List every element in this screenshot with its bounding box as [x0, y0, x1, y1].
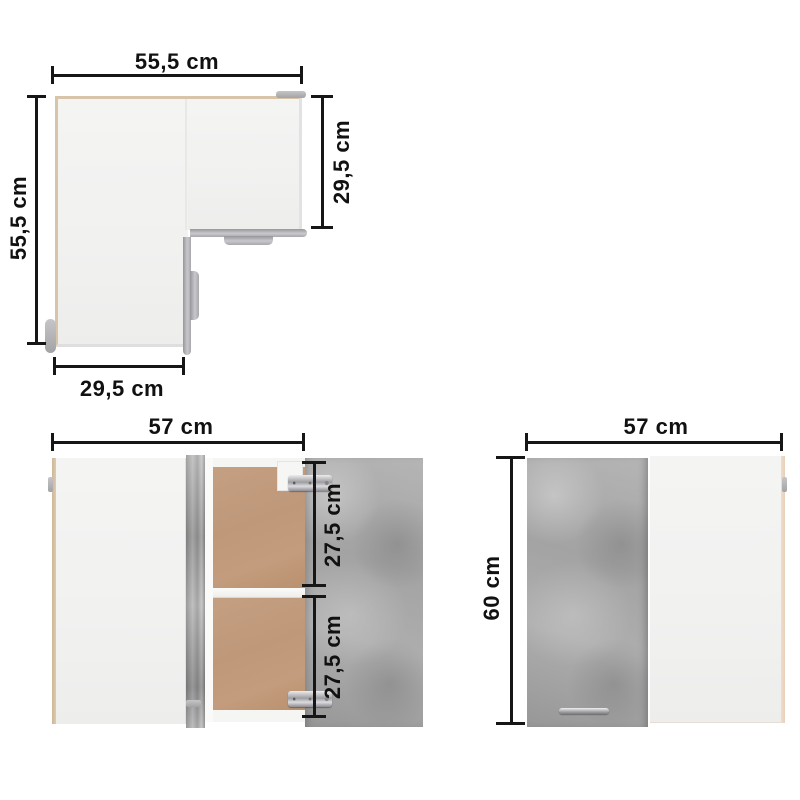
interior-shelf	[213, 588, 305, 598]
upper-compartment-dim-tick-bottom	[302, 584, 326, 587]
top-view-bottom-door-handle	[190, 271, 199, 320]
right-wing-dim-label: 29,5 cm	[329, 120, 355, 204]
closed-view-right-bracket-icon	[782, 477, 787, 492]
bottom-wing-dim-label: 29,5 cm	[80, 376, 164, 402]
open-width-dim-line	[52, 441, 305, 444]
bottom-wing-dim-line	[55, 365, 185, 368]
closed-height-dim-tick-top	[496, 456, 525, 459]
top-view-mount-bracket-icon	[276, 91, 306, 98]
top-view-side-bracket-icon	[45, 319, 56, 353]
top-view-left-wing-panel	[55, 96, 188, 347]
open-view-interior	[213, 458, 305, 722]
closed-view-white-side-panel	[650, 456, 781, 723]
upper-compartment-dim-tick-top	[302, 461, 326, 464]
right-wing-dim-tick-bottom	[311, 226, 333, 229]
closed-width-dim-tick-left	[525, 433, 528, 451]
closed-width-dim-tick-right	[780, 433, 783, 451]
open-view-left-bracket-icon	[48, 477, 53, 492]
top-view-panel-divider	[185, 99, 187, 230]
top-width-dim-tick-left	[51, 66, 54, 84]
open-view-carcass-sliver	[205, 458, 213, 722]
right-wing-dim-tick-top	[311, 95, 333, 98]
lower-compartment-dim-tick-top	[302, 595, 326, 598]
closed-height-dim-tick-bottom	[496, 722, 525, 725]
open-view-side-edge	[186, 455, 205, 728]
open-width-dim-label: 57 cm	[149, 414, 214, 440]
upper-compartment-dim-line	[313, 463, 316, 587]
open-width-dim-tick-right	[302, 433, 305, 451]
top-depth-dim-tick-bottom	[27, 342, 46, 345]
top-view-right-wing-panel	[188, 96, 302, 230]
top-depth-dim-tick-top	[27, 95, 46, 98]
top-width-dim-label: 55,5 cm	[135, 49, 219, 75]
closed-view-door-handle	[559, 708, 609, 714]
bottom-wing-dim-tick-right	[182, 357, 185, 375]
lower-compartment-dim-line	[313, 597, 316, 718]
closed-height-dim-line	[510, 458, 513, 725]
right-wing-dim-line	[321, 97, 324, 228]
open-view-closed-white-door	[56, 458, 186, 724]
lower-compartment-dim-label: 27,5 cm	[320, 615, 346, 699]
bottom-wing-dim-tick-left	[53, 357, 56, 375]
closed-view-right-oak-edge	[781, 456, 785, 723]
top-view-right-door-handle	[224, 236, 273, 245]
side-edge-hinge-plate-icon	[186, 700, 201, 707]
closed-height-dim-label: 60 cm	[479, 556, 505, 621]
top-width-dim-tick-right	[300, 66, 303, 84]
upper-compartment-dim-label: 27,5 cm	[320, 483, 346, 567]
lower-compartment-dim-tick-bottom	[302, 715, 326, 718]
corner-cabinet-dimensions-figure: 55,5 cm 55,5 cm 29,5 cm 29,5 cm 57 cm	[0, 0, 800, 800]
closed-width-dim-line	[527, 441, 782, 444]
top-depth-dim-label: 55,5 cm	[6, 176, 32, 260]
open-width-dim-tick-left	[51, 433, 54, 451]
closed-view-concrete-door	[527, 458, 648, 727]
top-depth-dim-line	[35, 96, 38, 345]
closed-width-dim-label: 57 cm	[624, 414, 689, 440]
